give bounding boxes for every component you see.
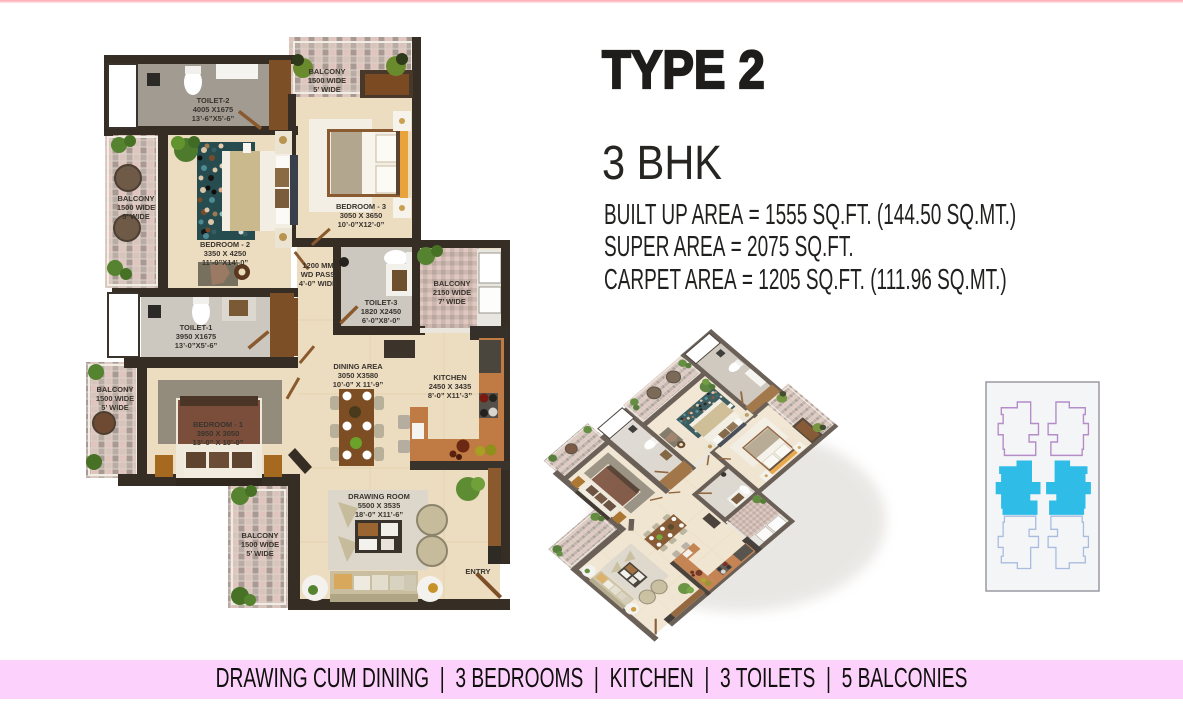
svg-text:11’-0”X14’-0”: 11’-0”X14’-0”	[202, 258, 249, 267]
svg-text:BALCONY: BALCONY	[241, 531, 278, 540]
svg-text:DRAWING ROOM: DRAWING ROOM	[348, 492, 410, 501]
svg-text:10’-0” X 11’-9”: 10’-0” X 11’-9”	[333, 380, 384, 389]
svg-text:1500 WIDE: 1500 WIDE	[308, 76, 346, 85]
svg-text:1500 WIDE: 1500 WIDE	[96, 394, 134, 403]
svg-text:13’-6”X5’-6”: 13’-6”X5’-6”	[192, 114, 235, 123]
svg-text:ENTRY: ENTRY	[465, 567, 490, 576]
svg-text:1500 WIDE: 1500 WIDE	[241, 540, 279, 549]
svg-text:KITCHEN: KITCHEN	[433, 373, 466, 382]
svg-text:WD PASS: WD PASS	[301, 270, 335, 279]
svg-text:10’-0”X12’-0”: 10’-0”X12’-0”	[338, 220, 385, 229]
svg-text:8’-0” X11’-3”: 8’-0” X11’-3”	[428, 391, 472, 400]
svg-text:BALCONY: BALCONY	[96, 385, 133, 394]
svg-text:BEDROOM - 2: BEDROOM - 2	[200, 240, 250, 249]
svg-text:BALCONY: BALCONY	[117, 194, 154, 203]
svg-text:6’-0”X8’-0”: 6’-0”X8’-0”	[362, 316, 401, 325]
svg-text:DINING AREA: DINING AREA	[333, 362, 383, 371]
svg-text:3050 X 3650: 3050 X 3650	[340, 211, 383, 220]
svg-text:3050 X3580: 3050 X3580	[338, 371, 378, 380]
svg-text:5’ WIDE: 5’ WIDE	[246, 549, 274, 558]
svg-text:3950 X 3050: 3950 X 3050	[197, 429, 240, 438]
svg-text:5’ WIDE: 5’ WIDE	[122, 212, 150, 221]
svg-text:TOILET-1: TOILET-1	[180, 323, 213, 332]
svg-text:5’ WIDE: 5’ WIDE	[313, 85, 341, 94]
svg-text:TOILET-2: TOILET-2	[197, 96, 230, 105]
svg-text:BEDROOM - 1: BEDROOM - 1	[193, 420, 243, 429]
svg-text:BALCONY: BALCONY	[433, 279, 470, 288]
svg-text:BEDROOM - 3: BEDROOM - 3	[336, 202, 386, 211]
svg-text:13’-0”X5’-6”: 13’-0”X5’-6”	[175, 341, 218, 350]
svg-text:4005 X1675: 4005 X1675	[193, 105, 233, 114]
svg-text:BALCONY: BALCONY	[308, 67, 345, 76]
svg-text:1820 X2450: 1820 X2450	[361, 307, 401, 316]
svg-text:13’-0” X 10’-0”: 13’-0” X 10’-0”	[193, 438, 244, 447]
svg-text:3950 X1675: 3950 X1675	[176, 332, 216, 341]
svg-text:1500 WIDE: 1500 WIDE	[117, 203, 155, 212]
svg-text:1200 MM: 1200 MM	[302, 261, 333, 270]
svg-text:4’-0” WIDE: 4’-0” WIDE	[299, 279, 337, 288]
svg-text:18’-0” X11’-6”: 18’-0” X11’-6”	[355, 510, 404, 519]
svg-text:2450 X 3435: 2450 X 3435	[429, 382, 472, 391]
svg-text:3350 X 4250: 3350 X 4250	[204, 249, 247, 258]
svg-text:5’ WIDE: 5’ WIDE	[101, 403, 129, 412]
svg-text:2150 WIDE: 2150 WIDE	[433, 288, 471, 297]
svg-text:5500 X 3535: 5500 X 3535	[358, 501, 401, 510]
svg-text:7’ WIDE: 7’ WIDE	[438, 297, 466, 306]
svg-text:TOILET-3: TOILET-3	[365, 298, 398, 307]
